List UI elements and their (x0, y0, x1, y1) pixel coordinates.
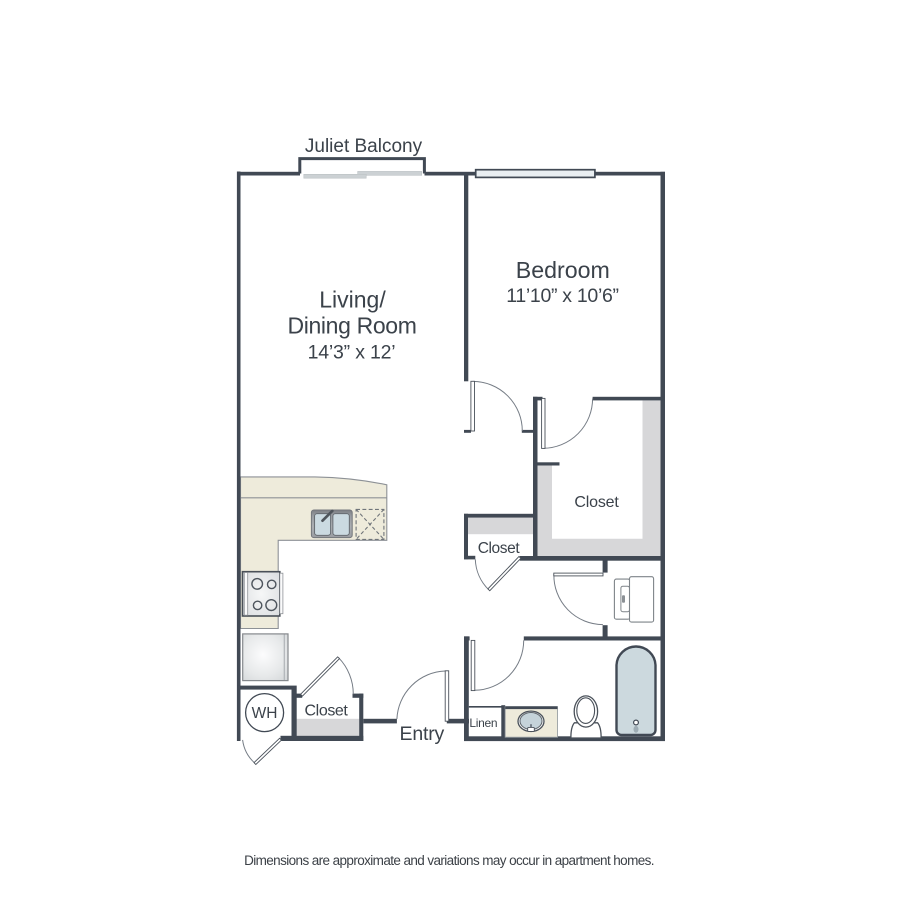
svg-text:Juliet Balcony: Juliet Balcony (305, 136, 423, 157)
svg-text:Bedroom: Bedroom (516, 257, 610, 283)
svg-text:Closet: Closet (305, 703, 349, 720)
svg-text:Closet: Closet (574, 494, 619, 511)
svg-text:Linen: Linen (469, 716, 497, 730)
svg-text:11’10” x 10’6”: 11’10” x 10’6” (506, 285, 619, 307)
svg-text:Entry: Entry (400, 723, 445, 745)
svg-text:Living/: Living/ (319, 287, 386, 313)
svg-text:Dining Room: Dining Room (287, 313, 416, 339)
svg-text:WH: WH (252, 705, 278, 722)
svg-text:Closet: Closet (478, 540, 521, 557)
svg-text:Dimensions are approximate and: Dimensions are approximate and variation… (244, 853, 654, 868)
svg-text:14’3” x 12’: 14’3” x 12’ (308, 342, 396, 364)
